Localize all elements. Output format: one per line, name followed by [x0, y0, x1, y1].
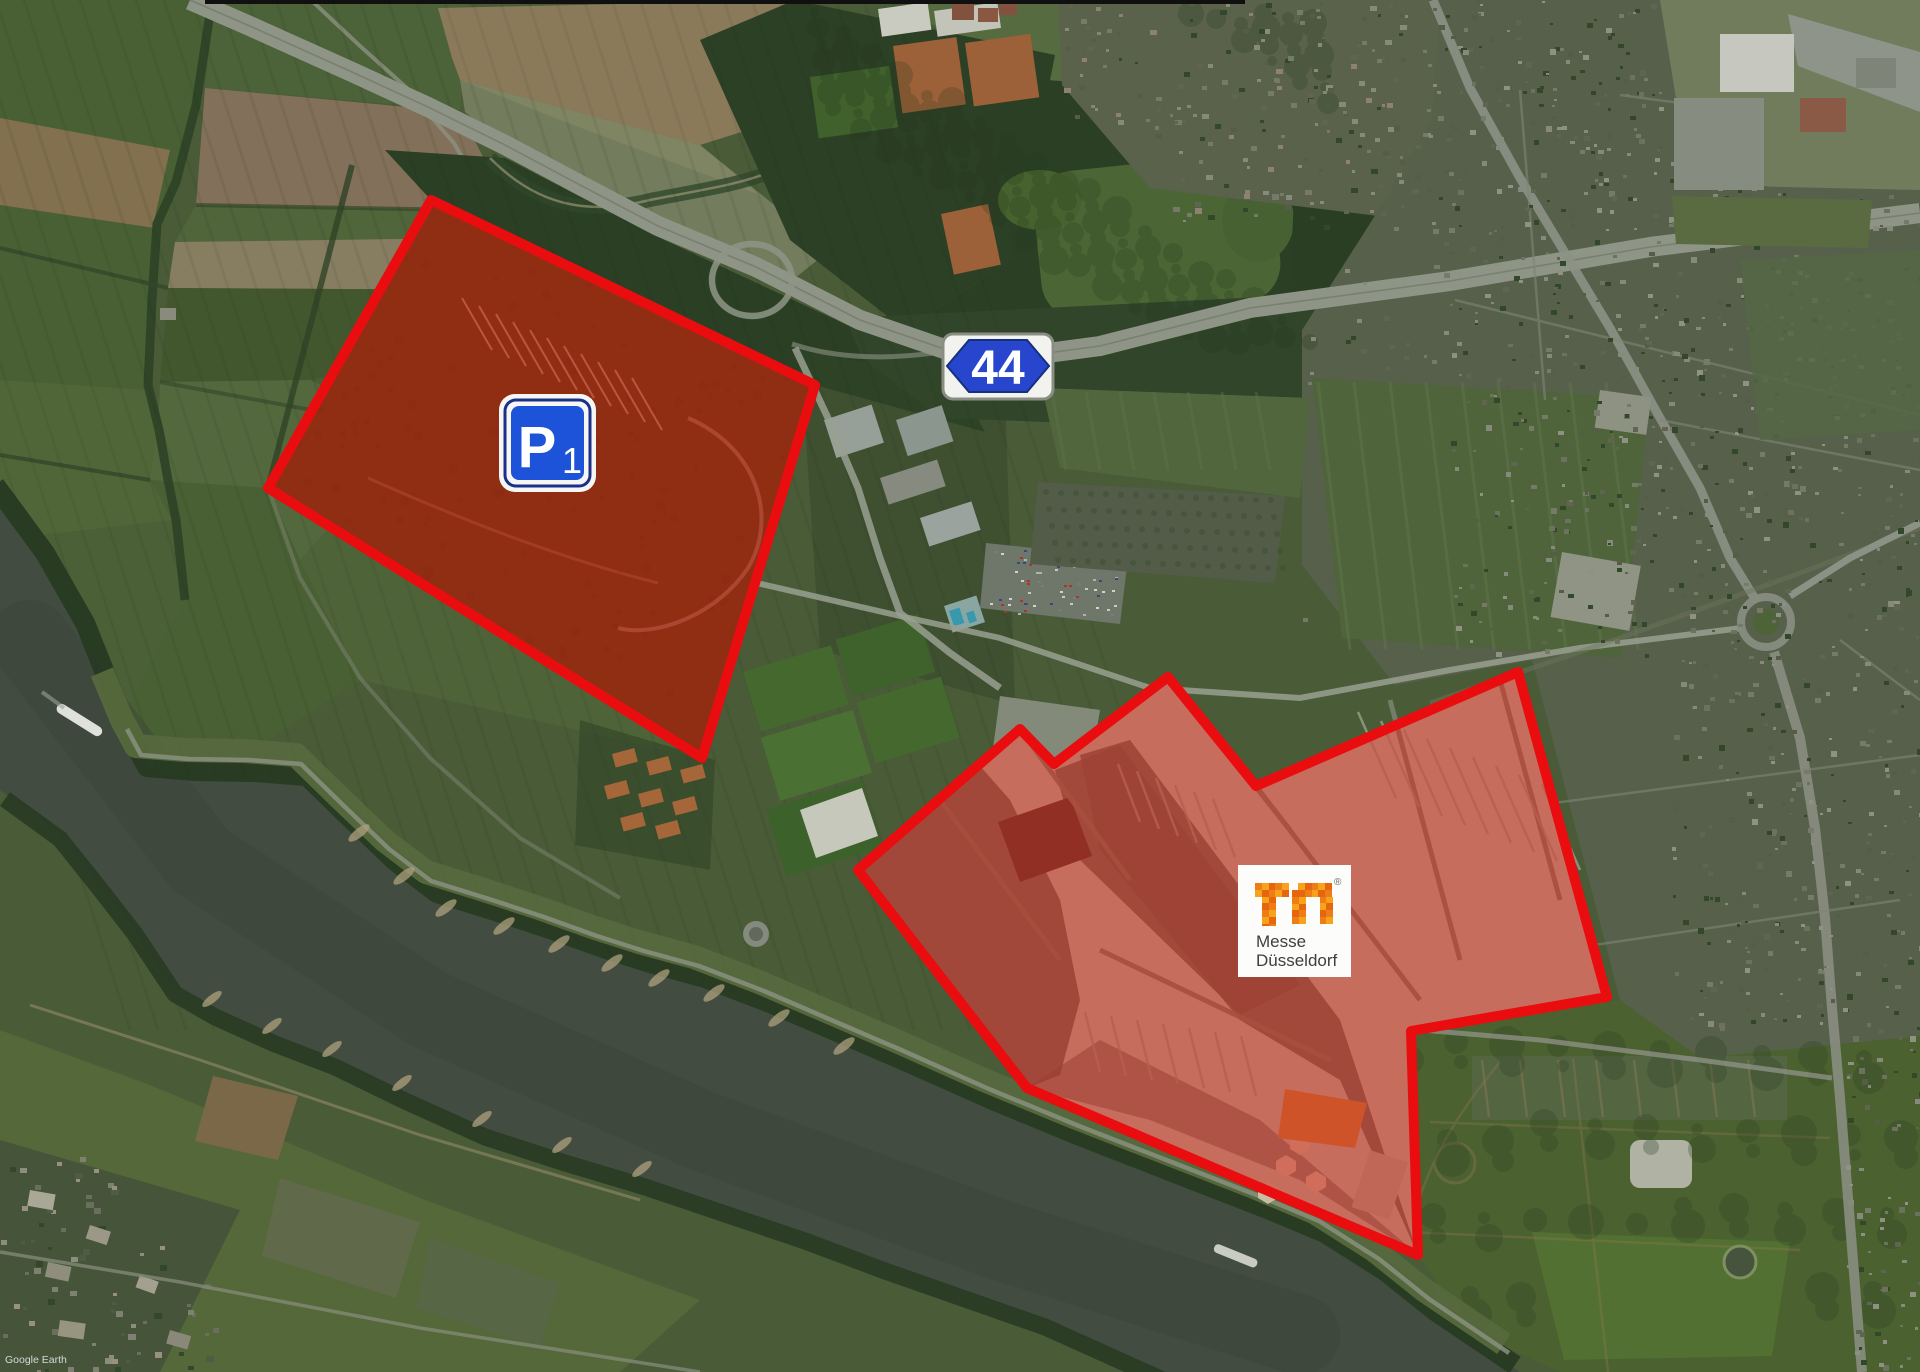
svg-text:P: P	[518, 415, 557, 480]
svg-text:Google Earth: Google Earth	[5, 1354, 67, 1366]
svg-text:Messe: Messe	[1256, 932, 1306, 951]
svg-text:44: 44	[971, 342, 1025, 395]
svg-text:1: 1	[562, 440, 582, 481]
svg-text:®: ®	[1334, 877, 1342, 888]
svg-text:Düsseldorf: Düsseldorf	[1256, 951, 1338, 970]
